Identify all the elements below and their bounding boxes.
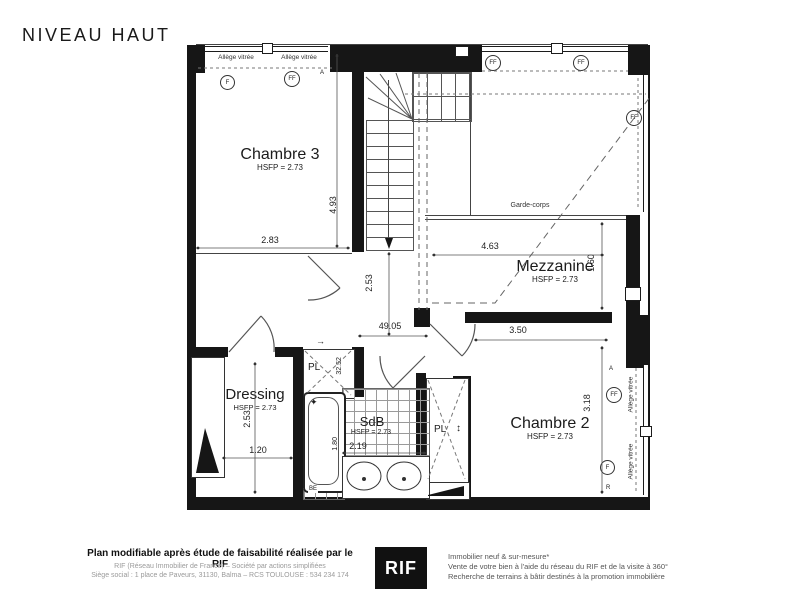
door-sdb: [380, 356, 425, 388]
floorplan-page: { "title": "NIVEAU HAUT", "rooms": { "ch…: [0, 0, 800, 600]
rif-logo-text: RIF: [385, 558, 417, 579]
door-hall-chambre3: [308, 256, 340, 300]
dimension-end-markers: [197, 55, 608, 494]
door-chambre2: [430, 324, 475, 356]
footer-address-line: Siège social : 1 place de Paveurs, 31130…: [80, 572, 360, 580]
allege-dashed-lines: [198, 68, 646, 494]
stair-dashed-guides: [419, 73, 427, 310]
dimension-lines: [196, 54, 608, 494]
footer-company-line: RIF (Réseau Immobilier de France) – Soci…: [80, 563, 360, 571]
roof-slope-dashed-lines: [432, 97, 650, 303]
footer-services-line1: Immobilier neuf & sur-mesure*: [448, 553, 549, 561]
door-swings: [229, 256, 475, 388]
footer-services-line3: Recherche de terrains à bâtir destinés à…: [448, 573, 665, 581]
sink-bowls: [347, 462, 421, 490]
pl2-base-wedge: [428, 486, 464, 496]
stair-winder-fan: [366, 73, 412, 119]
closet-cross-marks: [305, 351, 465, 479]
stair-direction-arrow: [385, 238, 393, 249]
footer-services-line2: Vente de votre bien à l'aide du réseau d…: [448, 563, 668, 571]
plan-linework-overlay: [0, 0, 800, 600]
rif-logo: RIF: [375, 547, 427, 589]
door-dressing: [229, 316, 274, 352]
niche-wedge: [196, 428, 219, 473]
